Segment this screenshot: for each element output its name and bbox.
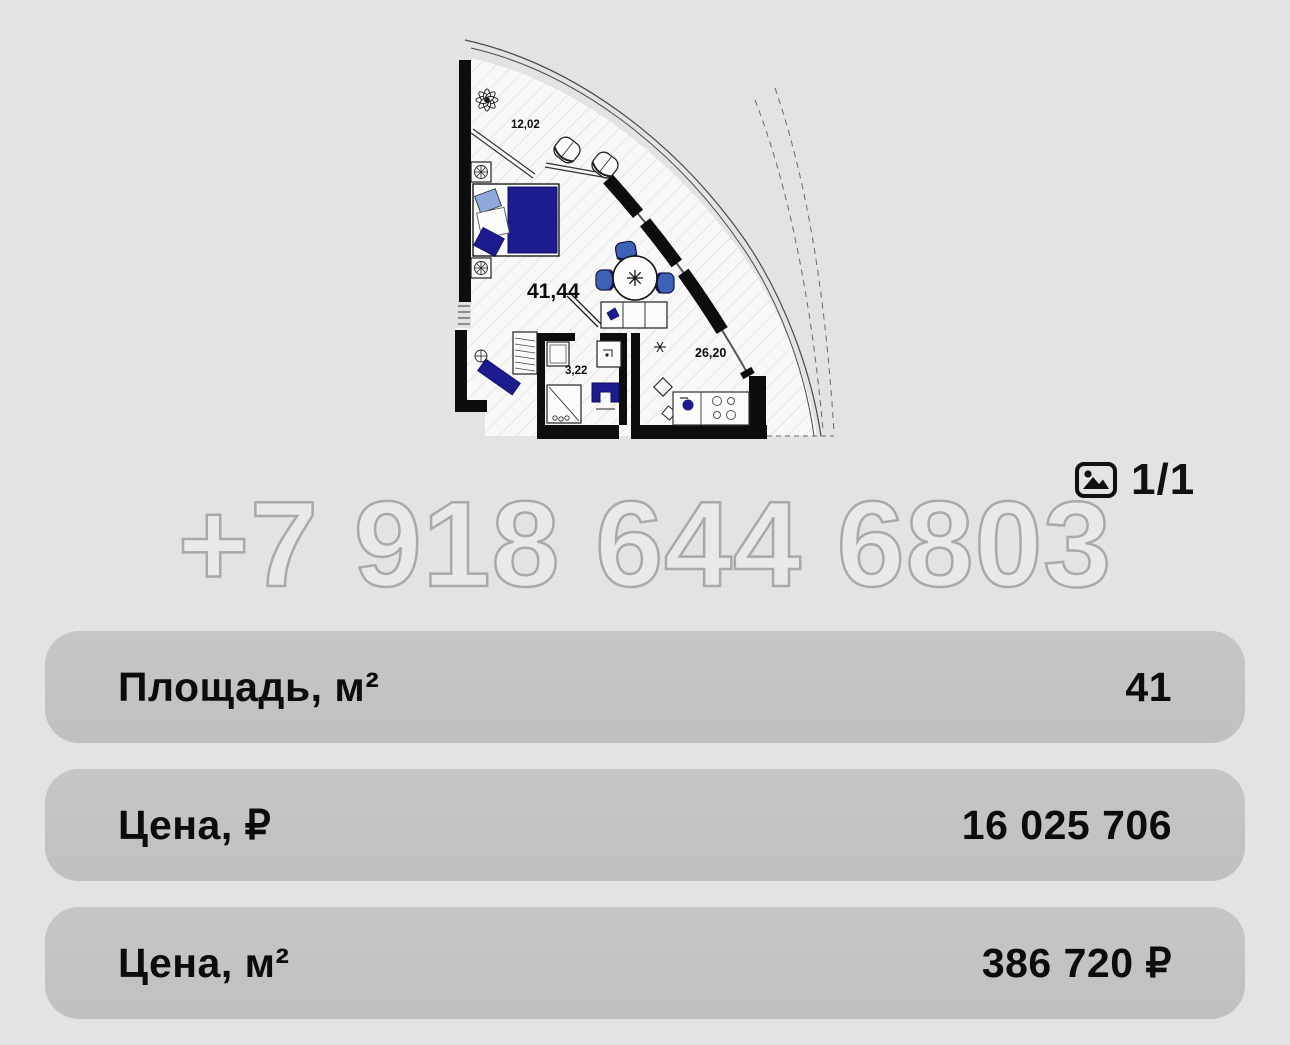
wardrobe bbox=[513, 332, 537, 374]
tv-stand bbox=[601, 302, 667, 328]
price-value: 16 025 706 bbox=[962, 802, 1172, 849]
gallery-counter: 1/1 bbox=[1074, 458, 1195, 502]
info-row-area: Площадь, м² 41 bbox=[45, 631, 1245, 743]
balcony-area-label: 12,02 bbox=[511, 119, 540, 131]
total-area-label: 41,44 bbox=[527, 280, 580, 303]
phone-watermark: +7 918 644 6803 bbox=[178, 483, 1112, 605]
area-label: Площадь, м² bbox=[118, 664, 379, 711]
info-row-price: Цена, ₽ 16 025 706 bbox=[45, 769, 1245, 881]
plant bbox=[476, 89, 498, 111]
price-per-m2-label: Цена, м² bbox=[118, 940, 290, 987]
radiator bbox=[458, 306, 470, 324]
living-area-label: 26,20 bbox=[695, 346, 726, 360]
listing-card: 12,02 41,44 3,22 26,20 +7 918 644 6803 1… bbox=[0, 0, 1290, 1028]
price-label: Цена, ₽ bbox=[118, 801, 271, 849]
price-per-m2-value: 386 720 ₽ bbox=[982, 939, 1172, 987]
info-row-price-per-m2: Цена, м² 386 720 ₽ bbox=[45, 907, 1245, 1019]
info-rows: Площадь, м² 41 Цена, ₽ 16 025 706 Цена, … bbox=[45, 631, 1245, 1045]
bed bbox=[473, 184, 559, 256]
photo-icon bbox=[1074, 461, 1118, 499]
floorplan-image[interactable]: 12,02 41,44 3,22 26,20 bbox=[455, 38, 835, 445]
bathroom-area-label: 3,22 bbox=[565, 365, 587, 377]
photo-count: 1/1 bbox=[1131, 455, 1195, 505]
area-value: 41 bbox=[1125, 664, 1172, 711]
